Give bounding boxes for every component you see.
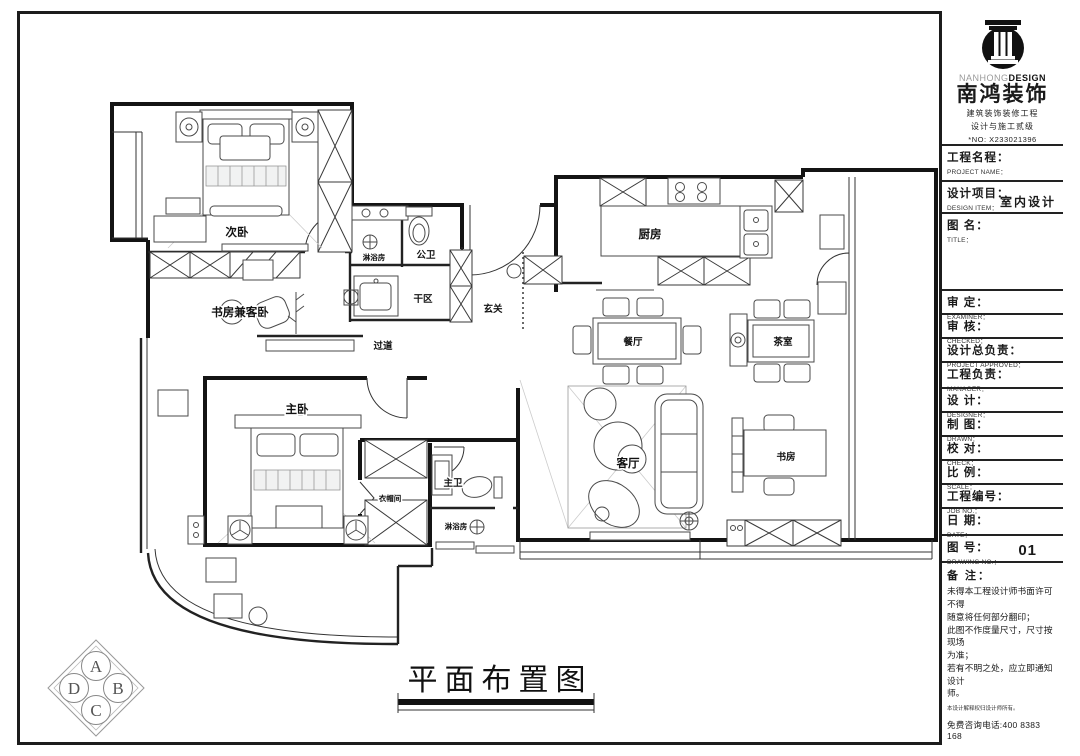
master-bedroom-door [367,378,407,418]
tb-row-design-item: 设计项目： DESIGN ITEM： 室内设计 [942,180,1063,212]
brand-name-gray: NANHONG [959,73,1009,83]
brand-section: NANHONGDESIGN 南鸿装饰 建筑装饰装修工程 设计与施工贰级 *NO:… [942,11,1063,144]
floor-plan: 次卧 书房兼客卧 淋浴房 公卫 干区 玄关 过道 厨房 餐厅 茶室 客厅 书房 … [0,0,1080,756]
room-label-kitchen: 厨房 [639,227,662,241]
tb-row-date: 日 期： DATE： [942,507,1063,534]
tb-label-zh: 比 例： [947,464,1058,480]
notes-body: 未得本工程设计师书面许可不得 随意将任何部分翻印； 此图不作度量尺寸，尺寸按现场… [947,585,1058,700]
tb-value-design-item: 室内设计 [1000,193,1056,210]
room-label-shower-1: 淋浴房 [363,252,386,262]
tb-row-manager: 工程负责： MANAGER： [942,361,1063,387]
tb-label-zh: 工程名程： [947,149,1058,165]
brand-name-bold: DESIGN [1009,73,1047,83]
tb-label-zh: 日 期： [947,512,1058,528]
tb-label-en: DRAWING NO.： [947,556,1058,566]
tb-label-zh: 工程编号： [947,488,1058,504]
notes-copyright: 本设计解释权归设计师所有。 [947,704,1058,712]
furniture-living [520,380,703,540]
tb-label-zh: 设 计： [947,392,1058,408]
notes-phone: 免费咨询电话:400 8383 168 [947,719,1058,741]
room-label-dining: 餐厅 [622,336,643,348]
tb-label-zh: 图 名： [947,217,1058,233]
brand-tagline-2: 设计与施工贰级 [971,121,1034,132]
tb-row-drawing-no: 图 号： DRAWING NO.： 01 [942,534,1063,561]
furniture-tea-room [730,300,814,382]
nanhong-logo-icon [976,19,1030,71]
room-label-public-bath: 公卫 [416,250,436,261]
title-block: NANHONGDESIGN 南鸿装饰 建筑装饰装修工程 设计与施工贰级 *NO:… [939,11,1063,745]
tb-row-examiner: 审 定： EXAMINER： [942,289,1063,313]
drawing-title-text: 平面布置图 [408,664,593,697]
tb-notes: 备 注： 未得本工程设计师书面许可不得 随意将任何部分翻印； 此图不作度量尺寸，… [942,561,1063,745]
elevation-letter-d: D [68,679,80,698]
tb-label-en: TITLE： [947,234,1058,244]
elevation-letter-a: A [90,657,103,676]
tb-label-zh: 制 图： [947,416,1058,432]
company-name: 南鸿装饰 [957,83,1049,106]
tb-label-zh: 校 对： [947,440,1058,456]
tb-label-zh: 设计总负责： [947,342,1058,358]
brand-english: NANHONGDESIGN [959,73,1046,83]
room-label-dry-area: 干区 [413,294,433,305]
tb-label-zh: 工程负责： [947,366,1058,382]
room-label-master-bath: 主卫 [443,477,463,489]
drawing-title: 平面布置图 [398,664,594,713]
room-label-cloakroom: 衣帽间 [379,493,402,503]
tb-label-en: PROJECT NAME： [947,166,1058,176]
room-label-tea-room: 茶室 [772,336,793,348]
tb-row-check: 校 对： CHECK： [942,435,1063,459]
room-label-secondary-bedroom: 次卧 [226,225,249,239]
tb-row-job-no: 工程编号： JOB NO.： [942,483,1063,507]
room-label-study-guest: 书房兼客卧 [211,305,269,319]
elevation-letter-b: B [112,679,123,698]
shower-sliding-door [436,542,514,553]
room-label-living: 客厅 [616,456,640,470]
room-label-shower-2: 淋浴房 [445,521,468,531]
room-label-foyer: 玄关 [483,303,503,315]
balcony-door [817,253,849,285]
brand-license-no: *NO: X233021396 [968,135,1036,144]
tb-row-project-approved: 设计总负责： PROJECT APPROVED： [942,337,1063,361]
room-label-hallway: 过道 [373,340,393,352]
page: 次卧 书房兼客卧 淋浴房 公卫 干区 玄关 过道 厨房 餐厅 茶室 客厅 书房 … [0,0,1080,756]
elevation-marker-icon: A D B C [48,640,144,736]
title-underline [398,699,594,705]
tb-row-designer: 设 计： DESIGNER： [942,387,1063,411]
furniture-master-bedroom [188,415,375,544]
room-label-study: 书房 [776,451,795,463]
tb-row-scale: 比 例： SCALE： [942,459,1063,483]
tb-row-title: 图 名： TITLE： [942,212,1063,289]
brand-tagline-1: 建筑装饰装修工程 [967,108,1039,119]
room-label-master-bedroom: 主卧 [286,402,309,416]
tb-row-drawn: 制 图： DRAWN： [942,411,1063,435]
elevation-letter-c: C [90,701,101,720]
notes-heading: 备 注： [947,567,1058,583]
tb-label-zh: 图 号： [947,539,1058,555]
tb-label-zh: 审 核： [947,318,1058,334]
tb-row-checked: 审 核： CHECKED： [942,313,1063,337]
tb-label-zh: 审 定： [947,294,1058,310]
tb-value-drawing-no: 01 [1018,542,1037,559]
tb-row-project-name: 工程名程： PROJECT NAME： [942,144,1063,180]
